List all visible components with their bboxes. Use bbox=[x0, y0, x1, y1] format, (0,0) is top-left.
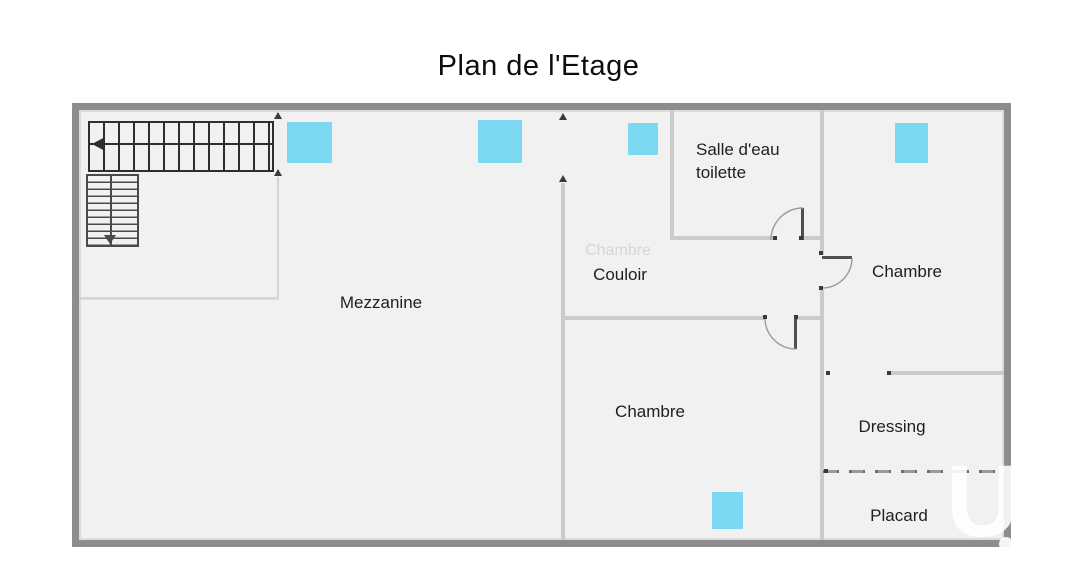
wall-end-tick bbox=[819, 251, 823, 255]
wall-end-tick bbox=[826, 371, 830, 375]
door-arcs-layer bbox=[79, 110, 1004, 540]
skylight-window bbox=[287, 122, 332, 163]
skylight-window bbox=[895, 123, 928, 163]
skylight-window bbox=[712, 492, 743, 529]
wall-salle-deau-bottom bbox=[670, 236, 775, 240]
door-leaf-chambre-bottom bbox=[794, 318, 797, 349]
wall-end-tick bbox=[824, 469, 828, 473]
staircase-direction-arrow-icon bbox=[104, 235, 116, 244]
wall-couloir-chambre-bottom-stub bbox=[794, 316, 824, 320]
room-label-placard: Placard bbox=[870, 506, 928, 526]
wall-end-tick bbox=[799, 236, 803, 240]
opening-marker-icon bbox=[274, 112, 282, 119]
room-label-couloir: Couloir bbox=[593, 265, 647, 285]
wall-couloir-dressing-lower bbox=[820, 290, 824, 540]
wall-mezzanine-couloir bbox=[561, 183, 565, 540]
wall-salle-deau-left bbox=[670, 110, 674, 240]
watermark-dot bbox=[999, 537, 1013, 551]
opening-marker-icon bbox=[274, 169, 282, 176]
room-label-mezzanine: Mezzanine bbox=[340, 293, 422, 313]
wall-end-tick bbox=[794, 315, 798, 319]
door-leaf-chambre-right bbox=[822, 256, 852, 259]
room-label-ghost: Chambre bbox=[585, 242, 651, 260]
staircase-direction-line bbox=[90, 143, 272, 145]
wall-end-tick bbox=[763, 315, 767, 319]
page-title: Plan de l'Etage bbox=[0, 50, 1077, 83]
wall-couloir-chambre-bottom bbox=[561, 316, 765, 320]
wall-end-tick bbox=[819, 286, 823, 290]
wall-chambre-dressing bbox=[890, 371, 1004, 375]
room-label-salle-deau: Salle d'eau toilette bbox=[696, 138, 780, 184]
wall-end-tick bbox=[887, 371, 891, 375]
room-label-chambre-bottom: Chambre bbox=[615, 402, 685, 422]
room-label-dressing: Dressing bbox=[858, 417, 925, 437]
stairwell-rail-vertical bbox=[277, 177, 279, 298]
floor-plan: Mezzanine Chambre Couloir Salle d'eau to… bbox=[72, 103, 1011, 547]
room-label-chambre-right: Chambre bbox=[872, 262, 942, 282]
stairwell-rail-horizontal bbox=[79, 297, 279, 299]
skylight-window bbox=[628, 123, 658, 155]
skylight-window bbox=[478, 120, 522, 163]
staircase-direction-arrow-icon bbox=[92, 137, 105, 151]
staircase-vertical bbox=[86, 174, 139, 247]
salle-deau-line2: toilette bbox=[696, 161, 780, 184]
door-arc-chambre-bottom bbox=[765, 318, 796, 349]
door-arc-chambre-right bbox=[822, 258, 852, 288]
opening-marker-icon bbox=[559, 175, 567, 182]
opening-marker-icon bbox=[559, 113, 567, 120]
wall-end-tick bbox=[773, 236, 777, 240]
wall-couloir-chambre-upper bbox=[820, 110, 824, 255]
staircase-horizontal bbox=[88, 121, 274, 172]
wall-salle-deau-bottom-stub bbox=[801, 236, 822, 240]
salle-deau-line1: Salle d'eau bbox=[696, 138, 780, 161]
